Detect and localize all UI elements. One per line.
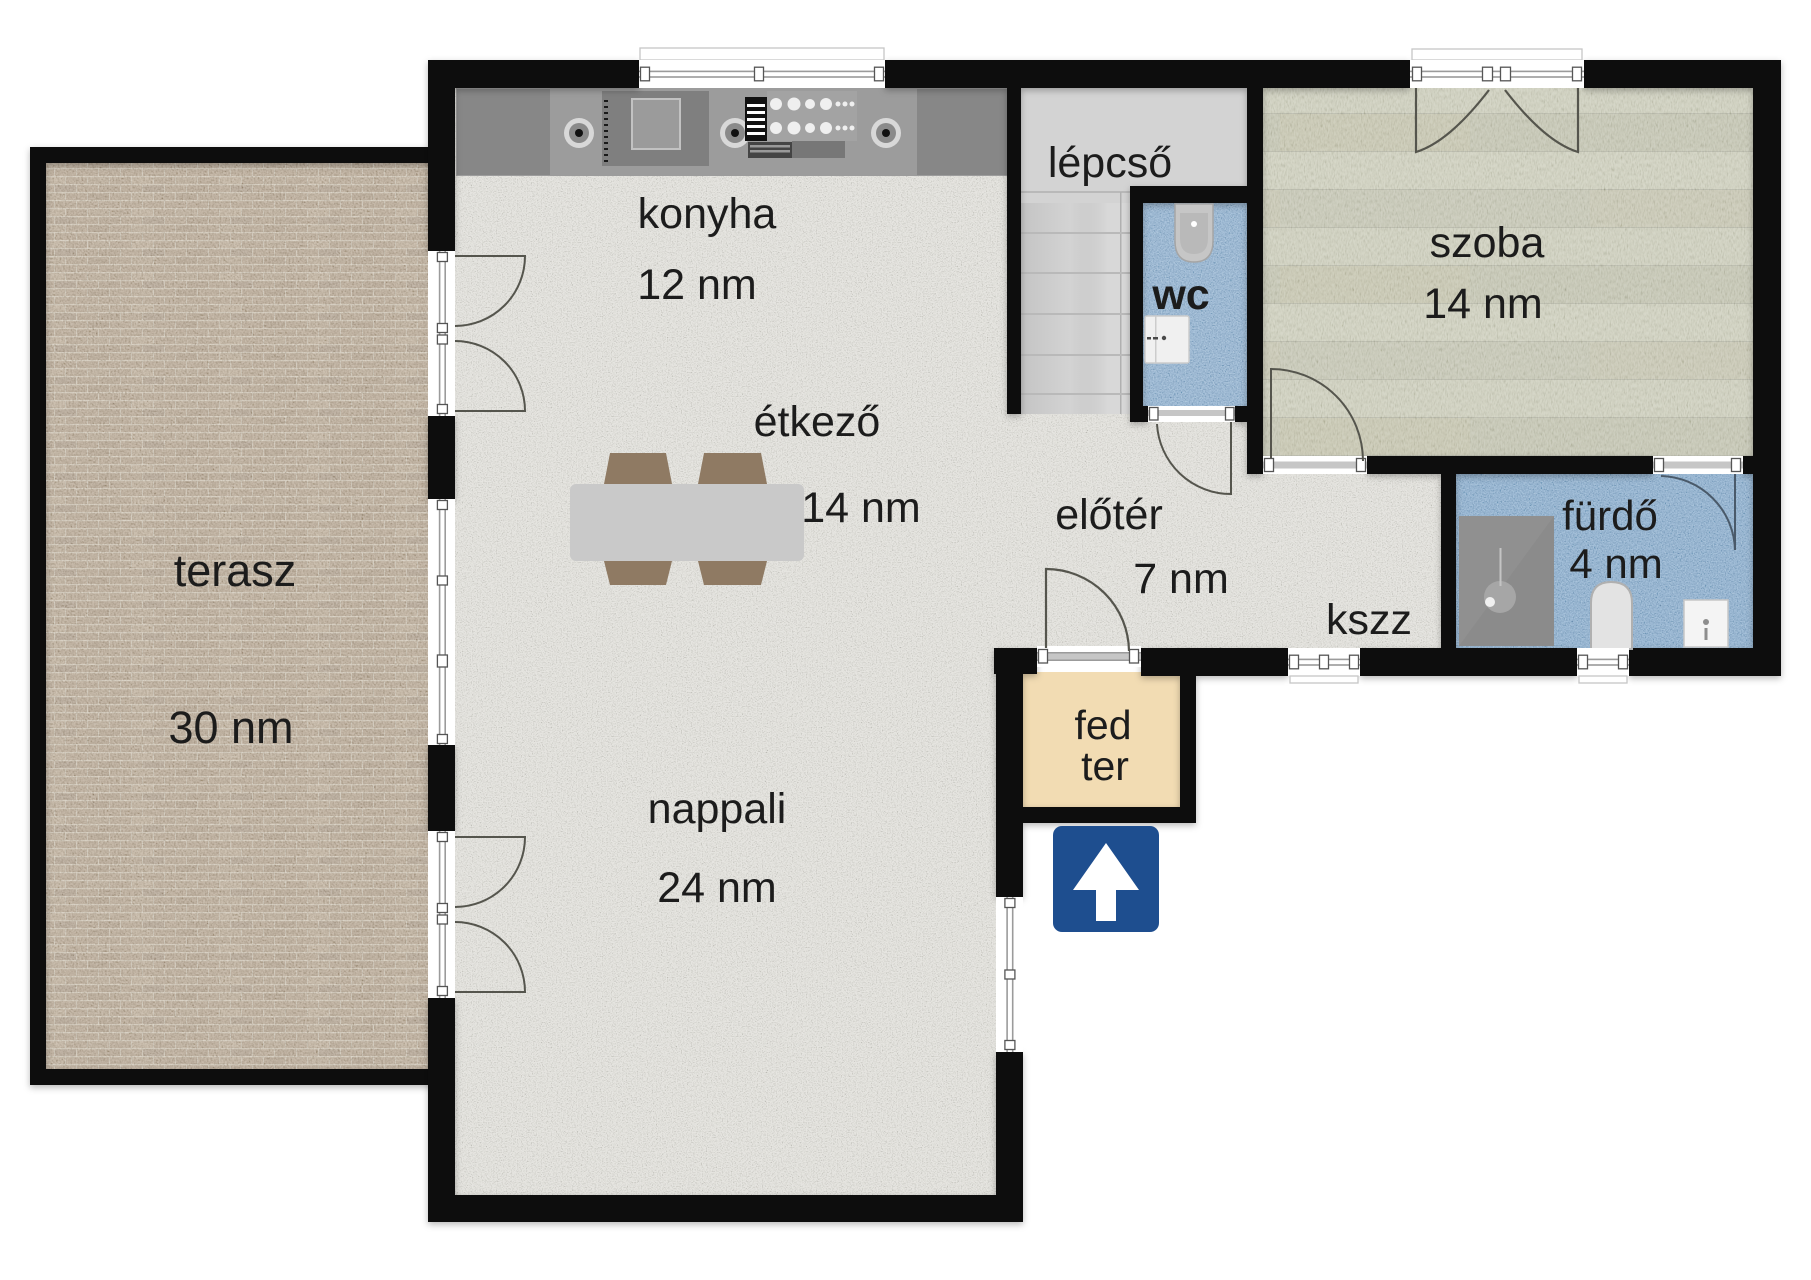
svg-text:24 nm: 24 nm — [657, 864, 777, 912]
svg-text:nappali: nappali — [648, 785, 787, 833]
svg-text:kszz: kszz — [1326, 596, 1412, 644]
svg-text:lépcső: lépcső — [1048, 139, 1172, 187]
svg-text:wc: wc — [1151, 271, 1209, 319]
svg-text:terasz: terasz — [174, 545, 297, 596]
svg-text:7 nm: 7 nm — [1133, 555, 1229, 603]
svg-text:fürdő: fürdő — [1562, 492, 1658, 539]
svg-text:étkező: étkező — [754, 398, 881, 446]
svg-text:14 nm: 14 nm — [1423, 280, 1543, 328]
svg-text:ter: ter — [1081, 743, 1129, 789]
svg-text:fed: fed — [1075, 702, 1132, 748]
svg-text:12 nm: 12 nm — [637, 261, 757, 309]
svg-text:4 nm: 4 nm — [1569, 540, 1662, 587]
svg-text:szoba: szoba — [1430, 219, 1545, 267]
svg-text:előtér: előtér — [1055, 491, 1163, 539]
svg-text:30 nm: 30 nm — [168, 702, 293, 753]
svg-text:konyha: konyha — [638, 190, 777, 238]
svg-text:14 nm: 14 nm — [801, 484, 921, 532]
